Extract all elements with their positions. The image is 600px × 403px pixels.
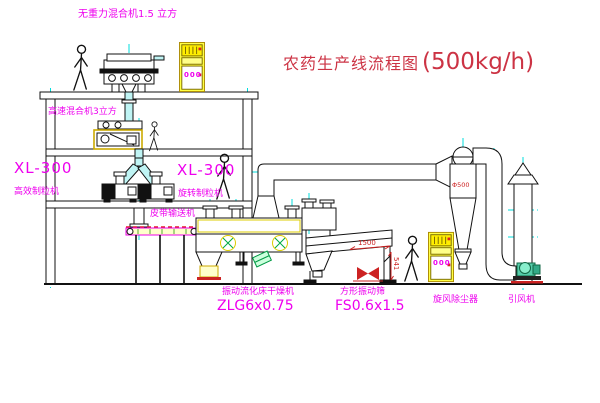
exhaust-duct [258, 164, 436, 196]
cabinet-1-display: 000 [184, 72, 202, 79]
worker-figure-4 [405, 236, 418, 281]
vibrating-sieve [302, 199, 396, 283]
diagram-title: 农药生产线流程图 (500kg/h) [283, 49, 534, 75]
control-cabinet-1 [180, 42, 205, 91]
rotary-valve [253, 251, 272, 267]
label-dryer-model: ZLG6x0.75 [217, 299, 294, 313]
label-cyclone: 旋风除尘器 [433, 296, 478, 305]
cabinet-2-display: 000 [433, 260, 451, 267]
dim-sieve-length: 1500 [358, 240, 376, 247]
label-fan: 引风机 [508, 296, 535, 305]
label-top-mixer: 无重力混合机1.5 立方 [78, 10, 177, 20]
label-second-mixer: 高速混合机3立方 [48, 108, 117, 117]
dim-cyclone: Φ500 [452, 182, 470, 189]
label-dryer-name: 振动流化床干燥机 [222, 288, 294, 297]
label-belt-conveyor: 皮带输送机 [150, 210, 195, 219]
outlet-duct [473, 148, 516, 280]
granulator-right [138, 172, 174, 202]
discharge-chute [130, 208, 148, 227]
dim-sieve-height: 541 [392, 257, 399, 270]
worker-figure-1 [74, 45, 87, 90]
worker-figure-2 [150, 122, 159, 151]
label-sieve-model: FS0.6x1.5 [335, 299, 405, 313]
diagram-title-cn: 农药生产线流程图 [283, 50, 419, 74]
label-sieve-name: 方形振动筛 [340, 288, 385, 297]
diagram-title-capacity: (500kg/h) [422, 49, 534, 75]
diagram-canvas: 农药生产线流程图 (500kg/h) 无重力混合机1.5 立方 高速混合机3立方… [0, 0, 600, 403]
control-cabinet-2 [428, 232, 453, 281]
label-granulator-right-model: XL-300 [177, 163, 235, 178]
label-granulator-right-name: 旋转制粒机 [178, 190, 223, 199]
label-granulator-left-model: XL-300 [14, 161, 72, 176]
label-granulator-left-name: 高效制粒机 [14, 188, 59, 197]
belt-conveyor [126, 227, 198, 283]
